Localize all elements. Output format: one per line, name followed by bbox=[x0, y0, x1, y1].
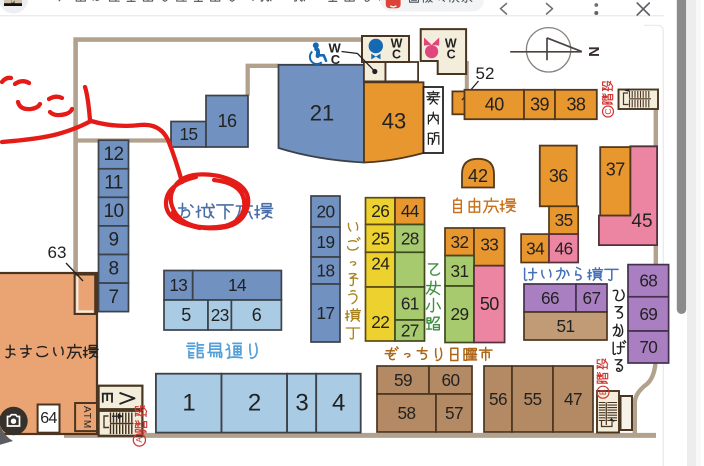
svg-text:37: 37 bbox=[606, 159, 625, 179]
svg-text:2: 2 bbox=[248, 390, 261, 417]
svg-text:C: C bbox=[447, 47, 456, 61]
svg-text:19: 19 bbox=[317, 232, 335, 252]
svg-text:43: 43 bbox=[382, 109, 406, 134]
svg-text:39: 39 bbox=[530, 95, 549, 115]
svg-text:52: 52 bbox=[476, 64, 495, 83]
svg-text:9: 9 bbox=[109, 230, 119, 251]
svg-text:29: 29 bbox=[451, 304, 469, 324]
svg-text:27: 27 bbox=[401, 321, 419, 341]
svg-text:67: 67 bbox=[583, 288, 601, 308]
svg-text:58: 58 bbox=[398, 403, 416, 423]
svg-text:N: N bbox=[585, 46, 601, 56]
svg-text:C: C bbox=[603, 108, 613, 114]
svg-text:34: 34 bbox=[526, 238, 545, 258]
svg-text:C: C bbox=[331, 52, 341, 67]
svg-text:1: 1 bbox=[182, 390, 195, 417]
svg-text:22: 22 bbox=[371, 312, 389, 332]
svg-text:18: 18 bbox=[317, 261, 335, 281]
svg-text:26: 26 bbox=[371, 201, 389, 221]
svg-text:42: 42 bbox=[468, 166, 488, 186]
svg-text:50: 50 bbox=[480, 294, 499, 314]
svg-text:51: 51 bbox=[557, 316, 575, 336]
svg-text:63: 63 bbox=[48, 243, 67, 262]
svg-text:14: 14 bbox=[228, 275, 247, 295]
svg-text:10: 10 bbox=[104, 201, 124, 222]
svg-text:4: 4 bbox=[332, 390, 345, 417]
svg-text:ATM: ATM bbox=[81, 406, 92, 429]
svg-text:61: 61 bbox=[401, 294, 419, 314]
svg-text:36: 36 bbox=[549, 166, 568, 186]
svg-text:69: 69 bbox=[639, 304, 657, 324]
svg-text:44: 44 bbox=[401, 201, 420, 221]
svg-text:17: 17 bbox=[317, 303, 335, 323]
svg-text:60: 60 bbox=[442, 370, 460, 390]
svg-text:15: 15 bbox=[180, 124, 198, 144]
svg-text:16: 16 bbox=[218, 111, 237, 131]
svg-text:57: 57 bbox=[445, 403, 463, 423]
svg-text:C: C bbox=[392, 47, 401, 61]
svg-text:47: 47 bbox=[564, 389, 582, 409]
svg-text:33: 33 bbox=[480, 234, 498, 254]
svg-text:3: 3 bbox=[295, 390, 308, 417]
svg-text:28: 28 bbox=[401, 228, 419, 248]
svg-text:8: 8 bbox=[109, 258, 119, 279]
svg-text:70: 70 bbox=[639, 337, 657, 357]
svg-text:64: 64 bbox=[40, 410, 57, 427]
svg-text:6: 6 bbox=[252, 305, 262, 325]
svg-text:46: 46 bbox=[555, 238, 573, 258]
svg-text:31: 31 bbox=[451, 261, 469, 281]
svg-text:B: B bbox=[598, 389, 608, 395]
svg-text:68: 68 bbox=[639, 271, 657, 291]
svg-text:12: 12 bbox=[104, 144, 124, 165]
svg-text:A: A bbox=[134, 437, 144, 443]
svg-text:23: 23 bbox=[211, 305, 229, 325]
svg-text:20: 20 bbox=[317, 202, 335, 222]
svg-text:35: 35 bbox=[555, 210, 573, 230]
svg-text:5: 5 bbox=[181, 305, 191, 325]
svg-text:7: 7 bbox=[109, 287, 119, 308]
svg-text:56: 56 bbox=[489, 389, 507, 409]
svg-text:32: 32 bbox=[451, 232, 469, 252]
svg-text:13: 13 bbox=[169, 275, 187, 295]
svg-text:11: 11 bbox=[104, 173, 123, 194]
svg-text:55: 55 bbox=[524, 389, 542, 409]
svg-text:66: 66 bbox=[541, 288, 559, 308]
svg-text:45: 45 bbox=[631, 211, 652, 232]
svg-text:24: 24 bbox=[371, 254, 390, 274]
svg-text:59: 59 bbox=[394, 370, 412, 390]
svg-text:25: 25 bbox=[371, 228, 389, 248]
svg-text:21: 21 bbox=[310, 101, 334, 126]
svg-text:40: 40 bbox=[485, 95, 504, 115]
svg-text:38: 38 bbox=[566, 95, 585, 115]
